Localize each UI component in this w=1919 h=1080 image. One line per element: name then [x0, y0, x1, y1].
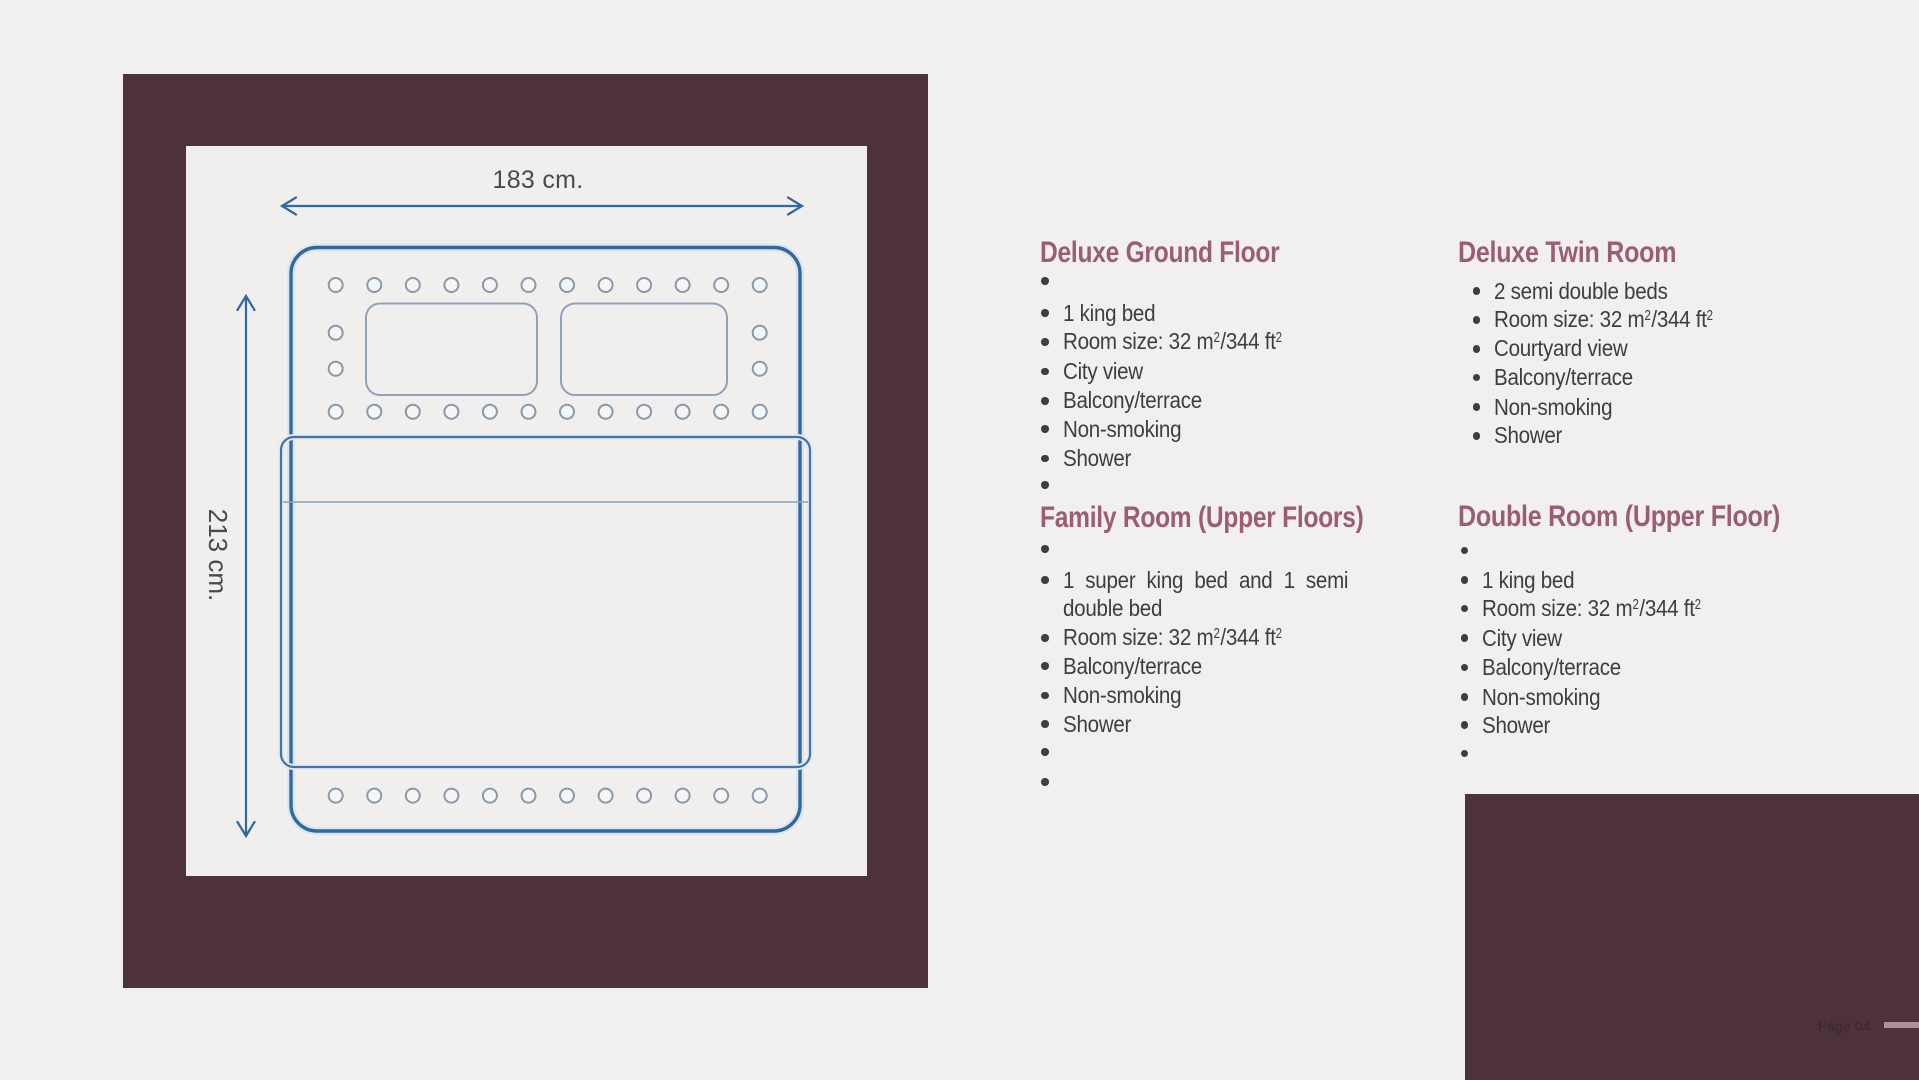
svg-text:213 cm.: 213 cm. — [203, 509, 233, 602]
svg-text:183 cm.: 183 cm. — [492, 166, 583, 194]
